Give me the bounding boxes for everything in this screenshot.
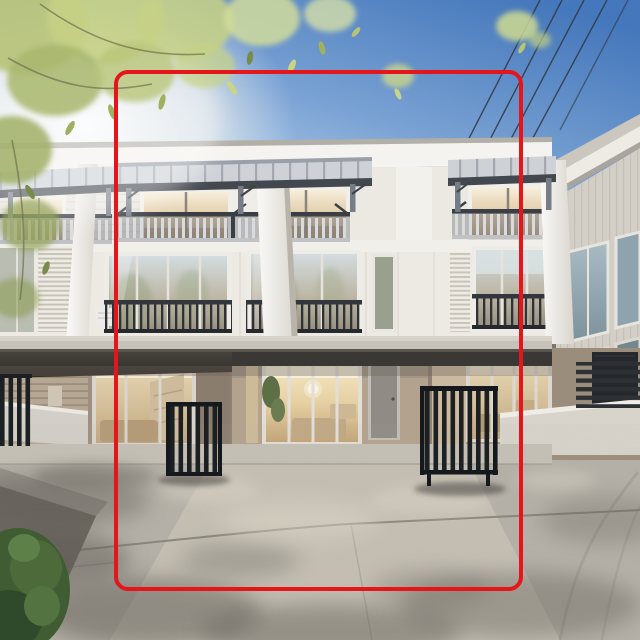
gate-left	[158, 402, 230, 486]
photo-recreation	[0, 0, 640, 640]
railing-right	[576, 362, 640, 408]
carport-ceiling	[0, 352, 552, 378]
fence-left	[0, 374, 32, 446]
window-mid-narrow	[372, 254, 396, 332]
canopy-right	[448, 156, 556, 186]
louver-shutter-left	[38, 246, 72, 332]
juliet-railing-3	[472, 294, 552, 329]
photo-canvas	[0, 0, 640, 640]
inter-floor-slab	[0, 336, 552, 354]
juliet-railing-1	[104, 300, 232, 333]
driveway	[0, 444, 640, 640]
louver-shutter-right	[450, 252, 470, 332]
